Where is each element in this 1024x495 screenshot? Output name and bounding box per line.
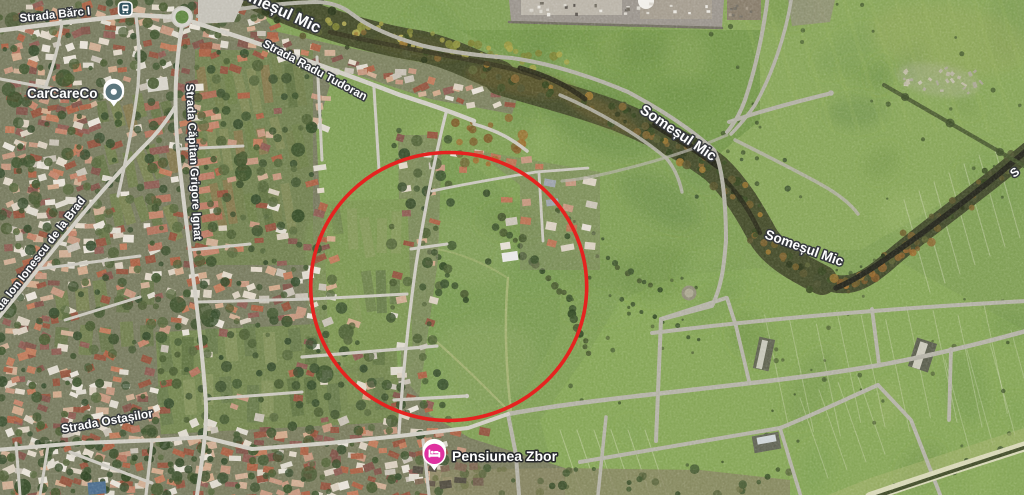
svg-text:Pensiunea Zbor: Pensiunea Zbor [452, 448, 558, 464]
svg-text:CarCareCo: CarCareCo [27, 86, 98, 101]
